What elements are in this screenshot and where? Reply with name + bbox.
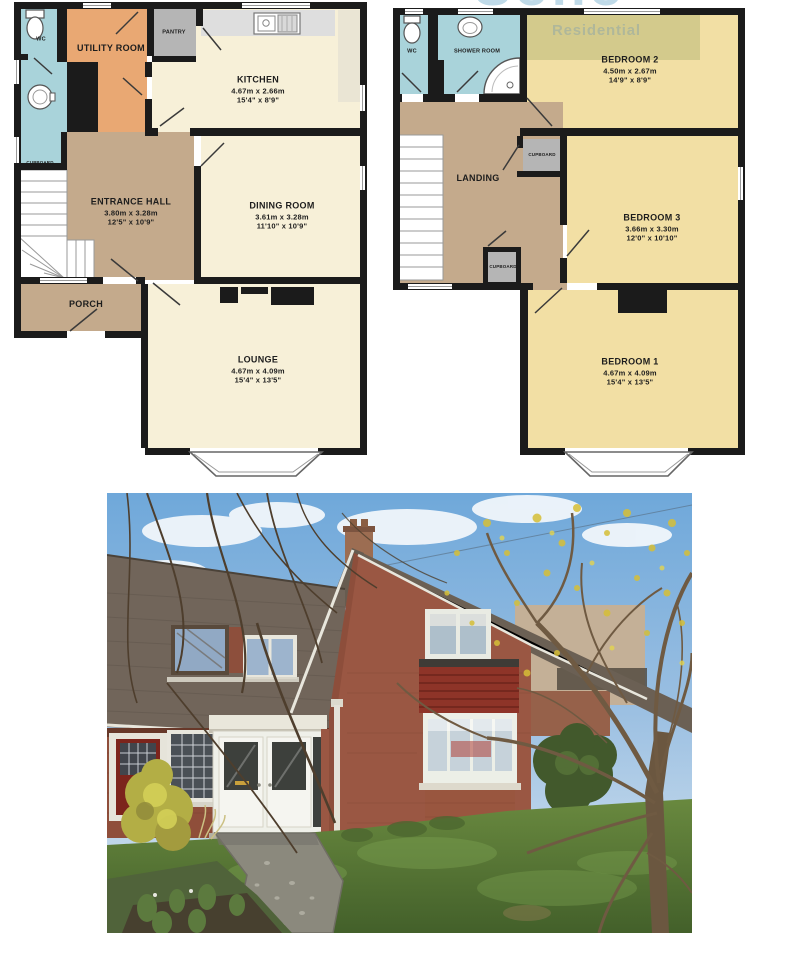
porch-doors <box>209 715 327 840</box>
bay-window-lounge <box>190 452 322 476</box>
room-label-landing: LANDING <box>456 173 499 185</box>
basin-icon-first <box>458 17 482 37</box>
room-label-wc-ground: WC <box>36 35 46 42</box>
room-label-kitchen: KITCHEN 4.67m x 2.66m 15'4" x 8'9" <box>231 74 284 105</box>
bay-window-bedroom1 <box>565 452 692 476</box>
room-label-entrance-hall: ENTRANCE HALL 3.80m x 3.28m 12'5" x 10'9… <box>91 196 171 227</box>
first-floor-plan <box>393 8 745 476</box>
property-listing-media-page: Soho Residential WC UTILITY ROOM PANTRY … <box>0 0 808 957</box>
upper-window <box>425 609 491 659</box>
room-label-cupboard-ground: CUPBOARD <box>26 160 53 166</box>
listing-graphics <box>0 0 808 957</box>
room-label-bedroom-1: BEDROOM 1 4.67m x 4.09m 15'4" x 13'5" <box>601 356 658 387</box>
watermark-brand-fragment: Soho <box>468 0 713 8</box>
room-label-shower-room: SHOWER ROOM <box>454 47 500 54</box>
watermark-sub-text: Residential <box>552 22 641 39</box>
tile-panel <box>419 659 519 713</box>
room-label-cupboard-bottom: CUPBOARD <box>489 264 516 270</box>
toilet-icon-first <box>404 16 420 43</box>
property-photo <box>107 493 692 935</box>
room-label-cupboard-top: CUPBOARD <box>528 152 555 158</box>
room-label-porch: PORCH <box>69 299 103 311</box>
room-label-utility: UTILITY ROOM <box>77 43 145 55</box>
room-label-bedroom-3: BEDROOM 3 3.66m x 3.30m 12'0" x 10'10" <box>623 212 680 243</box>
room-label-dining-room: DINING ROOM 3.61m x 3.28m 11'10" x 10'9" <box>249 200 314 231</box>
watermark-brand-text: Soho <box>474 0 626 8</box>
room-label-bedroom-2: BEDROOM 2 4.50m x 2.67m 14'9" x 8'9" <box>601 54 658 85</box>
ground-floor-plan <box>14 2 367 476</box>
room-label-lounge: LOUNGE 4.67m x 4.09m 15'4" x 13'5" <box>231 354 284 385</box>
room-label-wc-first: WC <box>407 47 417 54</box>
staircase-first <box>398 135 443 280</box>
room-label-pantry: PANTRY <box>162 28 185 35</box>
